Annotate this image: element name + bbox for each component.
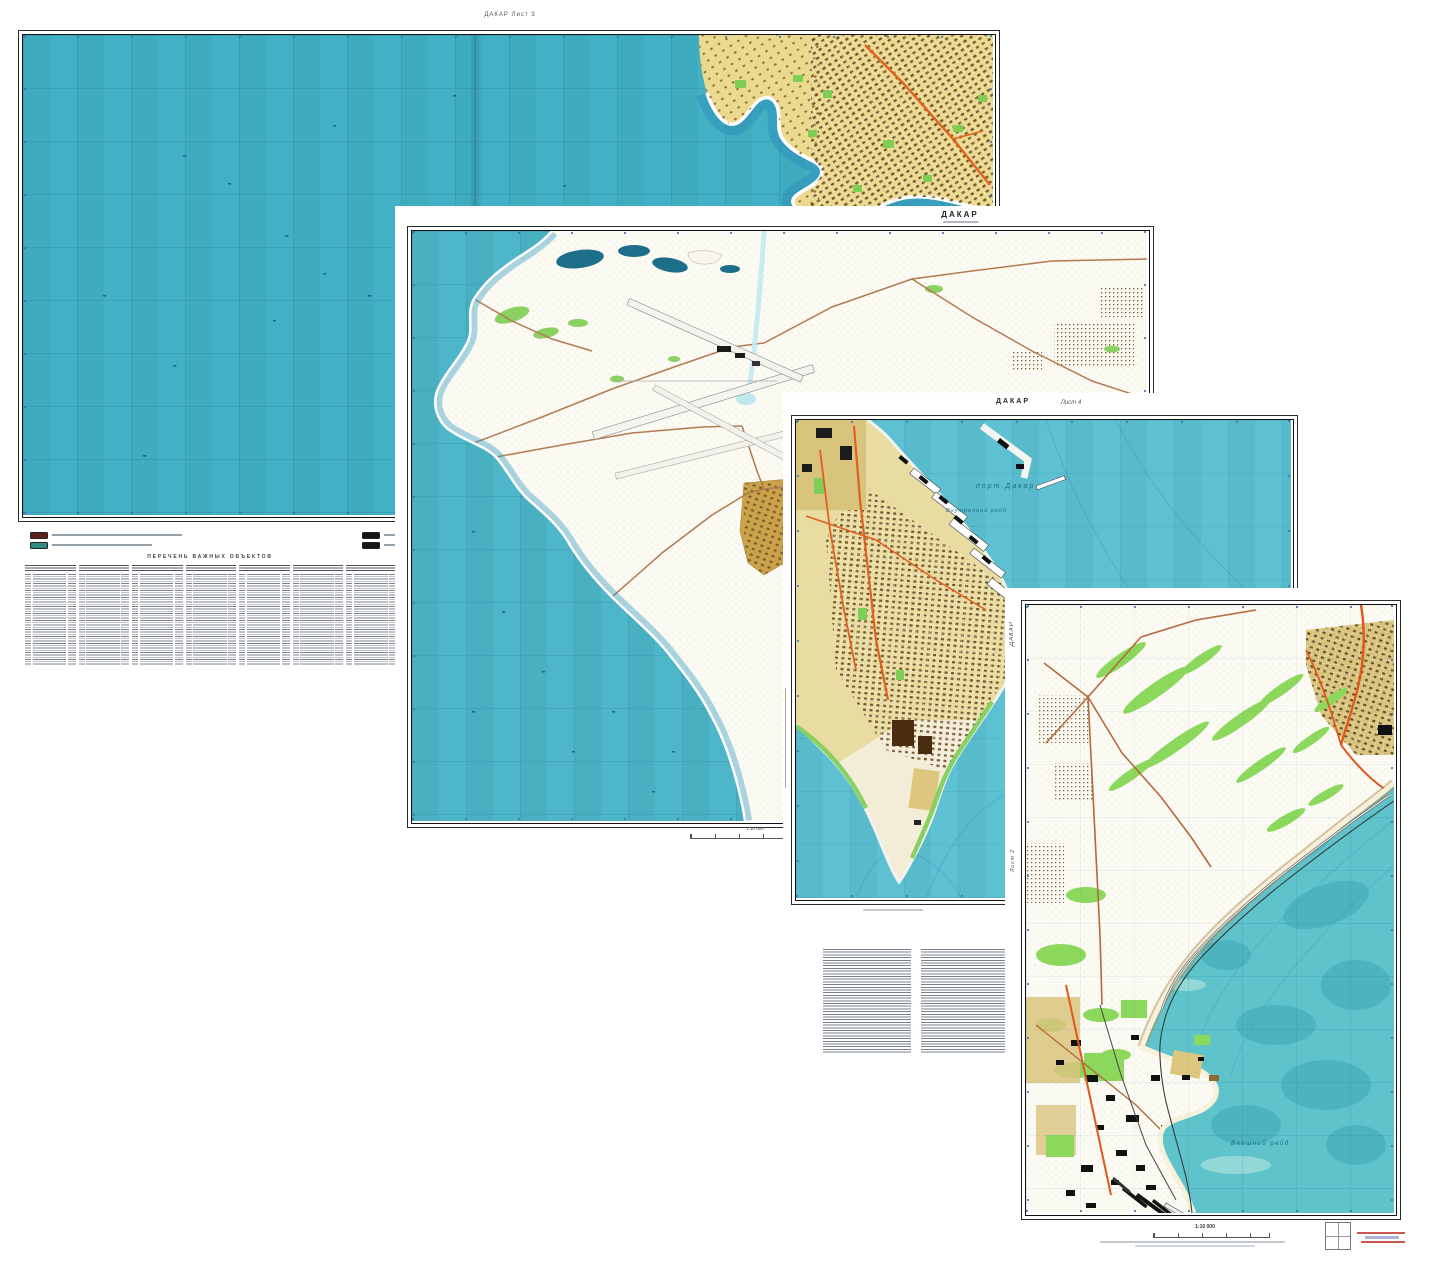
index-table-column (186, 565, 237, 665)
sheet4-side-sheet-label: Лист 2 (1010, 838, 1016, 872)
sheet2-title: ДАКАР (920, 210, 1000, 219)
description-text-column-1 (823, 949, 911, 1053)
index-table-column (25, 565, 76, 665)
scanned-map-collage: ДАКАР Лист 3 (0, 0, 1445, 1265)
sheet3-title: ДАКАР (978, 398, 1048, 405)
publisher-stamp-line-3 (1361, 1241, 1405, 1243)
water-label-port: порт Дакар (976, 483, 1035, 490)
sheet-index-diagram (1325, 1222, 1351, 1250)
description-text-column-2 (921, 949, 1007, 1053)
legend-item-built-up (30, 532, 182, 539)
sheet1-index-heading: ПЕРЕЧЕНЬ ВАЖНЫХ ОБЪЕКТОВ (25, 554, 395, 560)
legend-swatch-transport (362, 542, 380, 549)
legend-swatch-industrial (362, 532, 380, 539)
sheet4-scale-label: 1:10 000 (1175, 1224, 1235, 1230)
water-label-roadstead: Внутренний рейд (946, 507, 1007, 514)
sheet3-sheet-label: Лист 4 (1051, 400, 1091, 406)
index-table-column (293, 565, 344, 665)
publisher-stamp-line-1 (1357, 1232, 1405, 1234)
sheet1-index-table (25, 565, 397, 665)
sheet4-scale-caption-2 (1135, 1245, 1255, 1247)
sheet4-map-frame: Внешний рейд (1021, 600, 1401, 1220)
index-table-column (239, 565, 290, 665)
legend-item-water (30, 542, 152, 549)
index-table-column (132, 565, 183, 665)
sheet4-scale-caption (1100, 1241, 1285, 1243)
map-sheet-4: ДАКАР Лист 2 (1005, 588, 1445, 1265)
sheet3-left-margin-mark (785, 688, 786, 788)
legend-swatch-water (30, 542, 48, 549)
sheet4-scale-bar (1153, 1233, 1270, 1238)
publisher-stamp-line-2 (1365, 1236, 1399, 1239)
sheet3-margin-note (863, 909, 923, 911)
sheet4-map-art: Внешний рейд (1026, 605, 1394, 1213)
index-table-column (346, 565, 397, 665)
index-table-column (79, 565, 130, 665)
legend-swatch-built-up (30, 532, 48, 539)
sheet1-header-label: ДАКАР Лист 3 (440, 12, 580, 18)
sheet2-subtitle-smudge (943, 221, 979, 223)
sheet4-side-label: ДАКАР (1009, 602, 1015, 646)
sheet2-scale-label: 1:10 000 (725, 826, 785, 831)
